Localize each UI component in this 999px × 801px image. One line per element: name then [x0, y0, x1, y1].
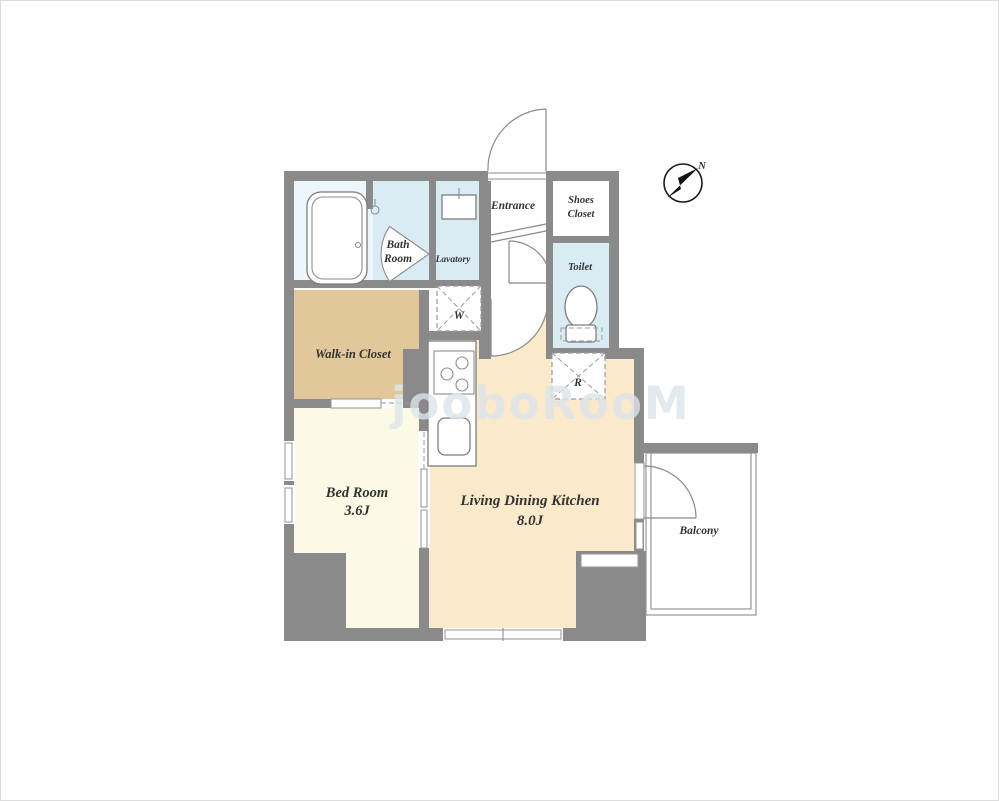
wall-segment [609, 171, 619, 359]
walk-in-closet-area [294, 290, 419, 349]
floor-plan-image: jooboRooM N Bath Room Lavatory Entrance … [1, 1, 999, 801]
bedroom-window [285, 488, 292, 522]
wall-segment [546, 181, 553, 236]
sliding-door-panel [421, 510, 427, 548]
ldk-size: 8.0J [517, 513, 544, 529]
entrance-label: Entrance [490, 200, 535, 212]
ldk-corner-window [581, 554, 638, 567]
wall-segment [284, 171, 488, 181]
balcony-wall [644, 443, 758, 453]
shoes-closet-label: Closet [568, 209, 596, 220]
bedroom-size: 3.6J [343, 503, 370, 519]
watermark: jooboRooM [389, 377, 691, 430]
wall-segment [294, 553, 346, 628]
walk-in-closet-label: Walk-in Closet [315, 347, 391, 361]
bath-room-label: Bath [385, 239, 409, 251]
ldk-area [548, 551, 576, 628]
closet-sliding-door [331, 399, 381, 408]
floor-plan-page: jooboRooM N Bath Room Lavatory Entrance … [0, 0, 999, 801]
wall-segment [546, 236, 619, 243]
toilet-label: Toilet [568, 262, 593, 273]
toilet-bowl [565, 286, 597, 328]
bath-room-label: Room [383, 253, 412, 265]
compass-icon: N [664, 161, 706, 202]
bedroom-label: Bed Room [325, 485, 388, 501]
shoes-closet-label: Shoes [568, 195, 594, 206]
refrigerator-label: R [573, 377, 582, 389]
wall-segment [294, 399, 331, 408]
entrance-step-lines [491, 224, 546, 242]
balcony-label: Balcony [679, 525, 720, 537]
hall-door-leaf [509, 241, 549, 283]
balcony-door-arc [644, 466, 696, 518]
washer-label: W [454, 310, 465, 322]
ldk-label: Living Dining Kitchen [459, 493, 599, 509]
front-door-arc [488, 109, 546, 171]
wall-segment [284, 171, 294, 441]
hall-door-arc [509, 241, 551, 283]
sliding-door-panel [421, 469, 427, 507]
compass-circle [664, 164, 702, 202]
wall-segment [546, 243, 553, 348]
wall-segment [284, 522, 294, 641]
bedroom-area [346, 553, 421, 628]
balcony-side-window [636, 522, 643, 549]
lavatory-label: Lavatory [435, 255, 472, 265]
bedroom-window [285, 443, 292, 479]
wall-segment [421, 331, 484, 340]
balcony-door-window [635, 463, 644, 519]
north-arrow-icon [667, 168, 698, 198]
north-label: N [697, 161, 706, 172]
wall-segment [429, 181, 436, 280]
bathtub [307, 192, 367, 284]
wall-segment [546, 171, 619, 181]
